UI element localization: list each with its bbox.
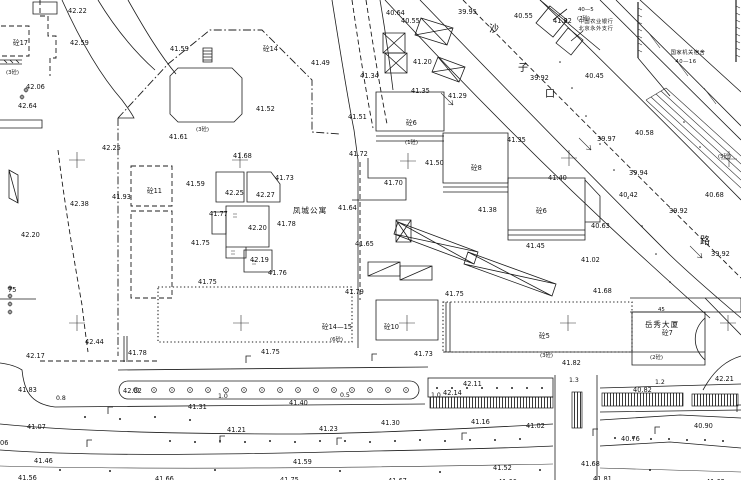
street-tree-dot: [519, 438, 521, 440]
spot-elevation: 41.83: [18, 386, 37, 394]
spot-elevation: 41.65: [355, 240, 374, 248]
street-name-character: 沙: [489, 23, 499, 35]
street-tree-dot: [189, 419, 191, 421]
street-tree-dot: [109, 470, 111, 472]
spot-elevation: 40.64: [386, 9, 405, 17]
spot-elevation: 41.75: [445, 290, 464, 298]
tree-symbol: [189, 389, 190, 390]
street-tree-dot: [339, 470, 341, 472]
spot-elevation: 41.31: [188, 403, 207, 411]
building-6-north: [376, 92, 444, 141]
spot-elevation: 41.73: [275, 174, 294, 182]
state-organ-compound-fence: [638, 0, 740, 96]
tree-symbol: [279, 389, 280, 390]
tree-symbol: [315, 389, 316, 390]
shrub-symbol: [19, 94, 24, 99]
complex-name-label: 凤城公寓: [293, 205, 327, 215]
width-annotation: 1.2: [655, 379, 665, 386]
street-tree-dot: [668, 438, 670, 440]
spot-elevation: 41.76: [268, 269, 287, 277]
street-tree-dot: [169, 440, 171, 442]
street-tree-dot: [699, 146, 701, 148]
street-tree-dot: [686, 439, 688, 441]
lamp-symbol: [655, 427, 660, 434]
spot-elevation: 41.73: [414, 350, 433, 358]
building-6-south: [508, 178, 600, 240]
survey-grid-cross: [560, 315, 576, 331]
spot-elevation: 42.21: [715, 375, 734, 383]
building-3t-octagon: [170, 48, 242, 122]
spot-elevation: 41.46: [34, 457, 53, 465]
street-tree-dot: [344, 440, 346, 442]
survey-map-sheet: 42.2242.5941.5942.0642.6441.6142.2540.64…: [0, 0, 741, 480]
spot-elevation: 41.07: [27, 423, 46, 431]
street-tree-dot: [539, 469, 541, 471]
spot-elevation: 42.25: [102, 144, 121, 152]
street-tree-dot: [599, 143, 601, 145]
spot-elevation: 42.19: [250, 256, 269, 264]
structure-annotation: (6砼): [330, 335, 343, 343]
spot-elevation: 42.11: [463, 380, 482, 388]
lamp-symbol: [220, 436, 225, 443]
spot-elevation: 39.92: [530, 74, 549, 82]
building-14-15: [124, 287, 352, 362]
street-tree-dot: [511, 387, 513, 389]
building-number-label: 砼17: [13, 38, 28, 47]
width-annotation: 1.3: [569, 377, 579, 384]
spot-elevation: 41.34: [360, 72, 379, 80]
street-tree-dot: [466, 387, 468, 389]
complex-name-label: 岳秀大厦: [645, 319, 679, 329]
street-tree-dot: [269, 440, 271, 442]
spot-elevation: 41.75: [198, 278, 217, 286]
spot-elevation: 41.75: [280, 476, 299, 480]
spot-elevation: 41.59: [170, 45, 189, 53]
building-number-label: 砼10: [384, 322, 399, 331]
street-tree-dot: [419, 439, 421, 441]
street-tree-dot: [526, 387, 528, 389]
spot-elevation: 41.56: [18, 474, 37, 480]
spot-elevation: 41.68: [581, 460, 600, 468]
building-number-label: 砼14—15: [322, 322, 352, 331]
spot-elevation: 40.90: [694, 422, 713, 430]
lower-road: [0, 415, 741, 472]
spot-elevation: 39.97: [597, 135, 616, 143]
building-11-outline: [131, 166, 172, 298]
spot-elevation: 41.23: [319, 425, 338, 433]
retaining-steps: [352, 158, 556, 296]
street-tree-dot: [650, 438, 652, 440]
lamp-symbol: [87, 440, 92, 447]
survey-grid-cross: [233, 315, 249, 331]
organization-label: 40—16: [675, 59, 696, 65]
street-tree-dot: [154, 416, 156, 418]
spot-elevation: 75: [8, 286, 16, 294]
spot-elevation: 40.45: [585, 72, 604, 80]
tree-symbol: [171, 389, 172, 390]
spot-elevation: 40.76: [621, 435, 640, 443]
spot-elevation: 41.29: [448, 92, 467, 100]
survey-grid-cross: [561, 150, 577, 166]
structure-annotation: (1砼): [405, 138, 418, 146]
spot-elevation: 41.50: [425, 159, 444, 167]
spot-elevation: 41.81: [593, 475, 612, 480]
spot-elevation: 42.20: [21, 231, 40, 239]
spot-elevation: 41.35: [507, 136, 526, 144]
street-tree-dot: [436, 387, 438, 389]
tree-symbol: [207, 389, 208, 390]
structure-annotation: 45: [658, 307, 665, 313]
street-tree-dot: [704, 439, 706, 441]
spot-elevation: 41.40: [289, 399, 308, 407]
street-tree-dot: [683, 121, 685, 123]
width-annotation: 0.8: [56, 395, 66, 402]
street-tree-dot: [632, 437, 634, 439]
spot-elevation: 41.52: [493, 464, 512, 472]
spot-elevation: 41.02: [581, 256, 600, 264]
tree-symbol: [387, 389, 388, 390]
lamp-symbol: [462, 433, 467, 440]
tree-symbol: [351, 389, 352, 390]
spot-elevation: 39.95: [458, 8, 477, 16]
street-tree-dot: [319, 440, 321, 442]
street-tree-dot: [496, 387, 498, 389]
spot-elevation: 41.38: [478, 206, 497, 214]
survey-grid-cross: [69, 152, 85, 168]
spot-elevation: 41.79: [345, 288, 364, 296]
spot-elevation: 41.78: [277, 220, 296, 228]
spot-elevation: 40.58: [635, 129, 654, 137]
spot-elevation: 41.52: [256, 105, 275, 113]
lamp-symbol: [246, 356, 251, 363]
building-5: [443, 302, 632, 352]
spot-elevation: 40.63: [591, 222, 610, 230]
spot-elevation: 42.25: [225, 189, 244, 197]
spot-elevation: 41.49: [311, 59, 330, 67]
spot-elevation: 41.45: [526, 242, 545, 250]
spot-elevation: 41.93: [112, 193, 131, 201]
spot-elevation: 39.92: [711, 250, 730, 258]
spot-elevation: 41.68: [233, 152, 252, 160]
lamp-symbol: [108, 407, 113, 414]
street-tree-dot: [541, 387, 543, 389]
width-annotation: 1.0: [218, 393, 228, 400]
spot-elevation: 06: [0, 439, 8, 447]
street-tree-dot: [669, 281, 671, 283]
survey-grid-cross: [400, 153, 416, 169]
street-tree-dot: [294, 441, 296, 443]
fengcheng-building-cluster: [212, 172, 280, 272]
building-number-label: 砼11: [147, 186, 162, 195]
spot-elevation: 42.59: [70, 39, 89, 47]
spot-elevation: 41.78: [128, 349, 147, 357]
width-annotation: 1.0: [431, 392, 441, 399]
street-tree-dot: [244, 441, 246, 443]
organization-label: 中国农业银行: [579, 17, 614, 25]
organization-label: 北京永外支行: [579, 24, 614, 32]
street-tree-dot: [194, 441, 196, 443]
street-name-character: 口: [545, 89, 555, 100]
spot-elevation: 41.70: [384, 179, 403, 187]
street-tree-dot: [84, 416, 86, 418]
shrub-symbol: [7, 293, 12, 298]
spot-elevation: 41.82: [553, 17, 572, 25]
spot-elevation: 41.35: [411, 87, 430, 95]
street-name-character: 路: [700, 234, 710, 247]
structure-annotation: (2砼): [650, 353, 663, 361]
street-tree-dot: [481, 387, 483, 389]
spot-elevation: 41.30: [381, 419, 400, 427]
spot-elevation: 42.06: [26, 83, 45, 91]
spot-elevation: 42.17: [26, 352, 45, 360]
street-tree-dot: [444, 440, 446, 442]
street-tree-dot: [627, 197, 629, 199]
spot-elevation: 42.02: [123, 387, 142, 395]
tree-symbol: [297, 389, 298, 390]
street-tree-dot: [722, 440, 724, 442]
ramp-stair-band-southeast: [646, 88, 741, 188]
spot-elevation: 41.51: [348, 113, 367, 121]
spot-elevation: 41.59: [293, 458, 312, 466]
spot-elevation: 39.94: [629, 169, 648, 177]
map-canvas: 42.2242.5941.5942.0642.6441.6142.2540.64…: [0, 0, 741, 480]
street-tree-dot: [655, 253, 657, 255]
structure-annotation: (3砼): [6, 68, 19, 76]
tree-symbol: [261, 389, 262, 390]
spot-elevation: 42.38: [70, 200, 89, 208]
street-tree-dot: [585, 115, 587, 117]
spot-elevation: 40.68: [705, 191, 724, 199]
spot-elevation: 42.20: [248, 224, 267, 232]
spot-elevation: 39.92: [669, 207, 688, 215]
spot-elevation: 41.72: [349, 150, 368, 158]
shrub-symbol: [7, 301, 12, 306]
building-number-label: 砼6: [536, 206, 547, 215]
street-tree-dot: [494, 439, 496, 441]
spot-elevation: 41.82: [562, 359, 581, 367]
street-tree-dot: [119, 418, 121, 420]
street-tree-dot: [469, 439, 471, 441]
spot-elevation: 40.82: [633, 386, 652, 394]
spot-elevation: 41.20: [413, 58, 432, 66]
spot-elevation: 41.40: [548, 174, 567, 182]
building-number-label: 砼6: [406, 118, 417, 127]
spot-elevation: 41.75: [191, 239, 210, 247]
spot-elevation: 41.21: [227, 426, 246, 434]
tree-symbol: [405, 389, 406, 390]
survey-grid-cross: [399, 315, 415, 331]
xbrace-ramps-top: [383, 18, 465, 82]
survey-grid-cross: [69, 315, 85, 331]
spot-elevation: 41.77: [209, 210, 228, 218]
slope-arrow: [690, 246, 702, 258]
spot-elevation: 42.44: [85, 338, 104, 346]
spot-elevation: 42.27: [256, 191, 275, 199]
street-tree-dot: [394, 440, 396, 442]
building-number-label: 砼14: [263, 44, 278, 53]
tree-symbol: [135, 389, 136, 390]
shrub-symbol: [7, 309, 12, 314]
lamp-symbol: [372, 354, 377, 361]
street-tree-dot: [649, 469, 651, 471]
tree-symbol: [225, 389, 226, 390]
street-tree-dot: [439, 471, 441, 473]
lamp-symbol: [337, 438, 342, 445]
spot-elevation: 41.66: [155, 475, 174, 480]
slope-arrow: [579, 138, 591, 150]
street-tree-dot: [59, 469, 61, 471]
spot-elevation: 41.64: [338, 204, 357, 212]
tree-symbol: [369, 389, 370, 390]
building-number-label: 砼5: [539, 331, 550, 340]
street-tree-dot: [641, 225, 643, 227]
width-annotation: 0.5: [340, 392, 350, 399]
spot-elevation: 41.16: [471, 418, 490, 426]
street-tree-dot: [571, 87, 573, 89]
tree-symbol: [243, 389, 244, 390]
spot-elevation: 40.55: [514, 12, 533, 20]
spot-elevation: 41.59: [186, 180, 205, 188]
building-number-label: 砼8: [471, 163, 482, 172]
street-tree-dot: [214, 469, 216, 471]
street-tree-dot: [451, 387, 453, 389]
spot-elevation: 41.75: [261, 348, 280, 356]
building-number-label: 砼7: [662, 328, 673, 337]
street-tree-dot: [559, 61, 561, 63]
structure-annotation: 40—5: [578, 7, 594, 13]
structure-annotation: (3砼): [540, 351, 553, 359]
spot-elevation: 41.61: [169, 133, 188, 141]
tree-symbol: [333, 389, 334, 390]
spot-elevation: 41.68: [593, 287, 612, 295]
street-tree-dot: [369, 441, 371, 443]
spot-elevation: 41.02: [526, 422, 545, 430]
structure-annotation: (3砼): [196, 125, 209, 133]
spot-elevation: 42.22: [68, 7, 87, 15]
organization-label: 国家机关宿舍: [671, 48, 706, 56]
spot-elevation: 40.55: [401, 17, 420, 25]
building-8: [443, 133, 508, 192]
street-tree-dot: [614, 437, 616, 439]
spot-elevation: 42.64: [18, 102, 37, 110]
tree-symbol: [153, 389, 154, 390]
street-tree-dot: [613, 169, 615, 171]
street-name-character: 子: [518, 62, 528, 74]
spot-elevation: 42.14: [443, 389, 462, 397]
survey-grid-cross: [720, 315, 736, 331]
